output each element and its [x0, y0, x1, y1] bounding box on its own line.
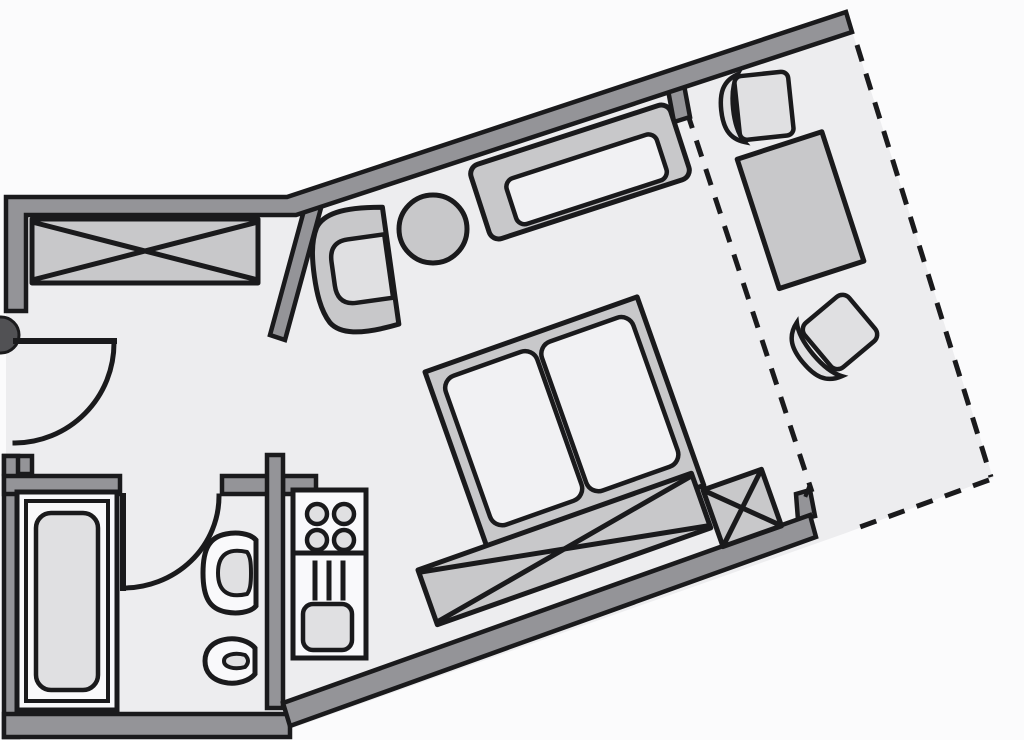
- kitchen-sink-basin: [303, 604, 352, 650]
- hob-burner-4: [334, 530, 354, 550]
- floor-plan-image: [0, 0, 1024, 740]
- wardrobe-crossed: [32, 219, 258, 283]
- kitchenette-unit: [293, 490, 366, 658]
- floor-plan-canvas: [0, 0, 1024, 740]
- bathtub-basin: [36, 513, 98, 690]
- hob-burner-3: [307, 530, 327, 550]
- toilet: [205, 639, 255, 683]
- toilet-bowl: [224, 654, 248, 668]
- armchair-seat: [329, 234, 393, 305]
- bathroom-kitchen-dividing-wall: [267, 455, 283, 708]
- washbasin: [203, 533, 256, 613]
- bottom-wall-end-tick: [806, 487, 809, 495]
- hob-burner-1: [307, 504, 327, 524]
- outer-wall-bottom-horizontal: [4, 714, 290, 737]
- bathtub: [17, 492, 117, 710]
- round-side-table: [399, 195, 467, 263]
- hob-burner-2: [334, 504, 354, 524]
- washbasin-bowl: [218, 551, 251, 596]
- balcony-chair-upper: [718, 69, 795, 144]
- balcony-chair-upper-seat: [734, 71, 794, 140]
